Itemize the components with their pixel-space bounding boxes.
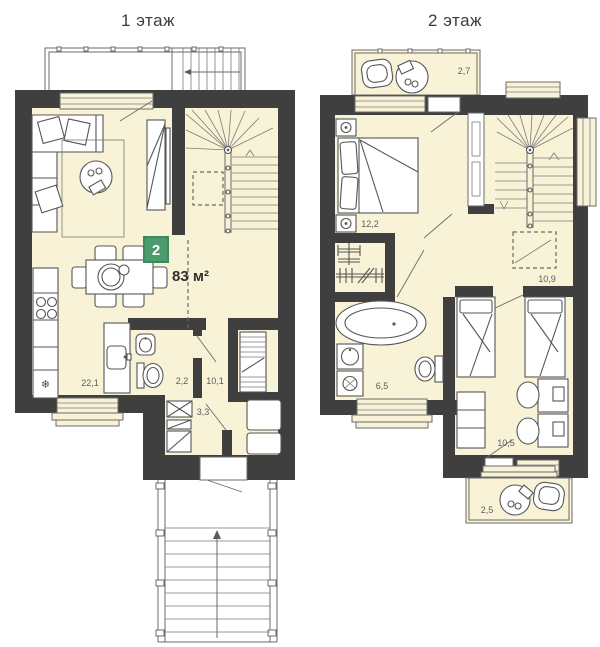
kitchen-sink-unit: [104, 323, 131, 393]
desk-chair: [517, 382, 539, 408]
desk-chair: [517, 418, 539, 444]
room-area-bathroom-f1: 2,2: [176, 376, 189, 386]
room-area-balcony-bottom: 2,5: [481, 505, 494, 515]
badge-number: 2: [152, 242, 160, 259]
fridge-icon: ❄: [41, 379, 50, 391]
wardrobe-shelves-f1: [240, 332, 266, 392]
floor-plan-svg: 1 этаж: [0, 0, 600, 647]
stair-partition: [468, 113, 484, 206]
tv-unit: [147, 120, 170, 210]
balcony-armchair: [360, 58, 393, 89]
total-area-label: 83 м²: [172, 268, 209, 285]
apartment-badge: 2: [144, 237, 168, 262]
floor2-plan: 2 этаж: [320, 11, 596, 523]
dresser: [457, 392, 485, 448]
entry-bench: [247, 400, 281, 454]
storage-shelves: [167, 401, 192, 452]
room-area-balcony-top: 2,7: [458, 66, 471, 76]
floor-plan-canvas: 1 этаж: [0, 0, 600, 647]
room-area-storage: 3,3: [197, 407, 210, 417]
kitchen-counter: ❄: [33, 268, 58, 398]
floor1-title: 1 этаж: [121, 11, 175, 30]
room-area-bathroom-f2: 6,5: [376, 381, 389, 391]
balcony-chair-bottom: [532, 481, 565, 512]
exterior-stairs: [156, 480, 277, 642]
floor1-plan: 1 этаж: [15, 11, 295, 642]
room-area-bedroom: 12,2: [361, 219, 379, 229]
floor2-title: 2 этаж: [428, 11, 482, 30]
room-area-hallway: 10,1: [206, 376, 224, 386]
room-area-kitchen-living: 22,1: [81, 378, 99, 388]
room-area-hall-f2: 10,9: [538, 274, 556, 284]
entry-door-swing: [207, 480, 242, 492]
room-area-kids-room: 10,5: [497, 438, 515, 448]
floor1-terrace: [45, 47, 245, 95]
stairs-up-arrow-icon: [213, 530, 221, 539]
